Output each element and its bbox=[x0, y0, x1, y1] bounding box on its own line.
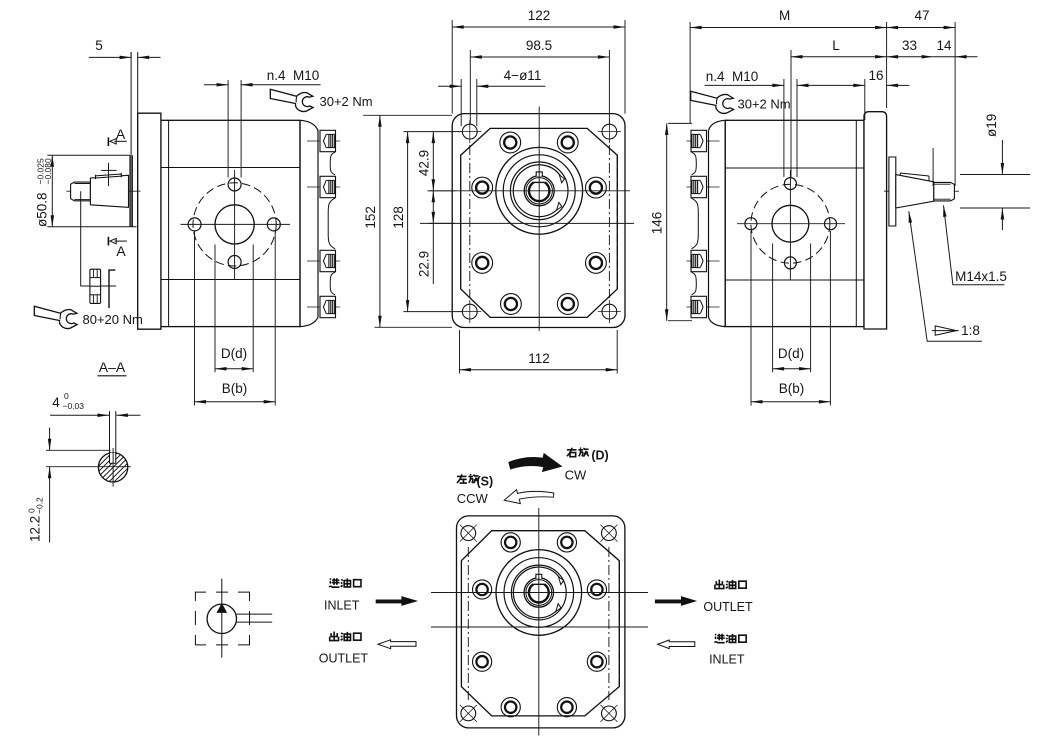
svg-text:A–A: A–A bbox=[99, 359, 126, 375]
svg-text:INLET: INLET bbox=[709, 653, 745, 667]
svg-text:−0.03: −0.03 bbox=[63, 401, 85, 411]
svg-text:16: 16 bbox=[868, 68, 883, 83]
svg-text:14: 14 bbox=[936, 38, 952, 53]
svg-text:0: 0 bbox=[64, 391, 69, 401]
svg-text:42.9: 42.9 bbox=[416, 150, 431, 176]
svg-text:80+20 Nm: 80+20 Nm bbox=[83, 312, 143, 327]
svg-text:33: 33 bbox=[902, 38, 917, 53]
svg-text:CW: CW bbox=[565, 468, 587, 483]
svg-text:−0.2: −0.2 bbox=[35, 497, 45, 514]
svg-text:152: 152 bbox=[363, 206, 378, 229]
svg-text:4−ø11: 4−ø11 bbox=[504, 68, 542, 83]
svg-text:(S): (S) bbox=[476, 475, 493, 489]
svg-text:n.4 M10: n.4 M10 bbox=[706, 69, 759, 84]
svg-text:A: A bbox=[116, 243, 126, 259]
svg-text:122: 122 bbox=[528, 8, 551, 23]
svg-text:A: A bbox=[116, 126, 126, 142]
svg-text:1:8: 1:8 bbox=[961, 323, 980, 338]
svg-text:5: 5 bbox=[95, 38, 103, 53]
svg-text:INLET: INLET bbox=[324, 599, 360, 613]
svg-text:22.9: 22.9 bbox=[416, 251, 431, 277]
svg-text:(D): (D) bbox=[591, 449, 608, 463]
svg-text:112: 112 bbox=[528, 351, 550, 366]
svg-text:L: L bbox=[832, 38, 840, 53]
svg-text:12.2: 12.2 bbox=[28, 516, 43, 542]
svg-text:OUTLET: OUTLET bbox=[703, 600, 753, 614]
svg-text:4: 4 bbox=[52, 395, 60, 410]
svg-text:ø19: ø19 bbox=[984, 114, 999, 137]
svg-text:CCW: CCW bbox=[457, 491, 489, 506]
svg-text:98.5: 98.5 bbox=[526, 38, 552, 53]
svg-text:B(b): B(b) bbox=[779, 381, 805, 396]
svg-text:M: M bbox=[779, 8, 790, 23]
svg-text:47: 47 bbox=[914, 8, 929, 23]
svg-text:146: 146 bbox=[649, 212, 664, 235]
svg-text:128: 128 bbox=[391, 206, 406, 229]
svg-text:30+2 Nm: 30+2 Nm bbox=[320, 94, 373, 109]
svg-text:−0.080: −0.080 bbox=[43, 158, 53, 185]
svg-text:D(d): D(d) bbox=[778, 346, 804, 361]
svg-text:n.4 M10: n.4 M10 bbox=[267, 68, 320, 83]
svg-text:B(b): B(b) bbox=[222, 381, 248, 396]
svg-text:D(d): D(d) bbox=[221, 346, 247, 361]
svg-text:M14x1.5: M14x1.5 bbox=[955, 269, 1007, 284]
svg-text:ø50.8: ø50.8 bbox=[35, 192, 50, 227]
svg-text:OUTLET: OUTLET bbox=[319, 652, 369, 666]
svg-text:30+2 Nm: 30+2 Nm bbox=[738, 97, 791, 112]
